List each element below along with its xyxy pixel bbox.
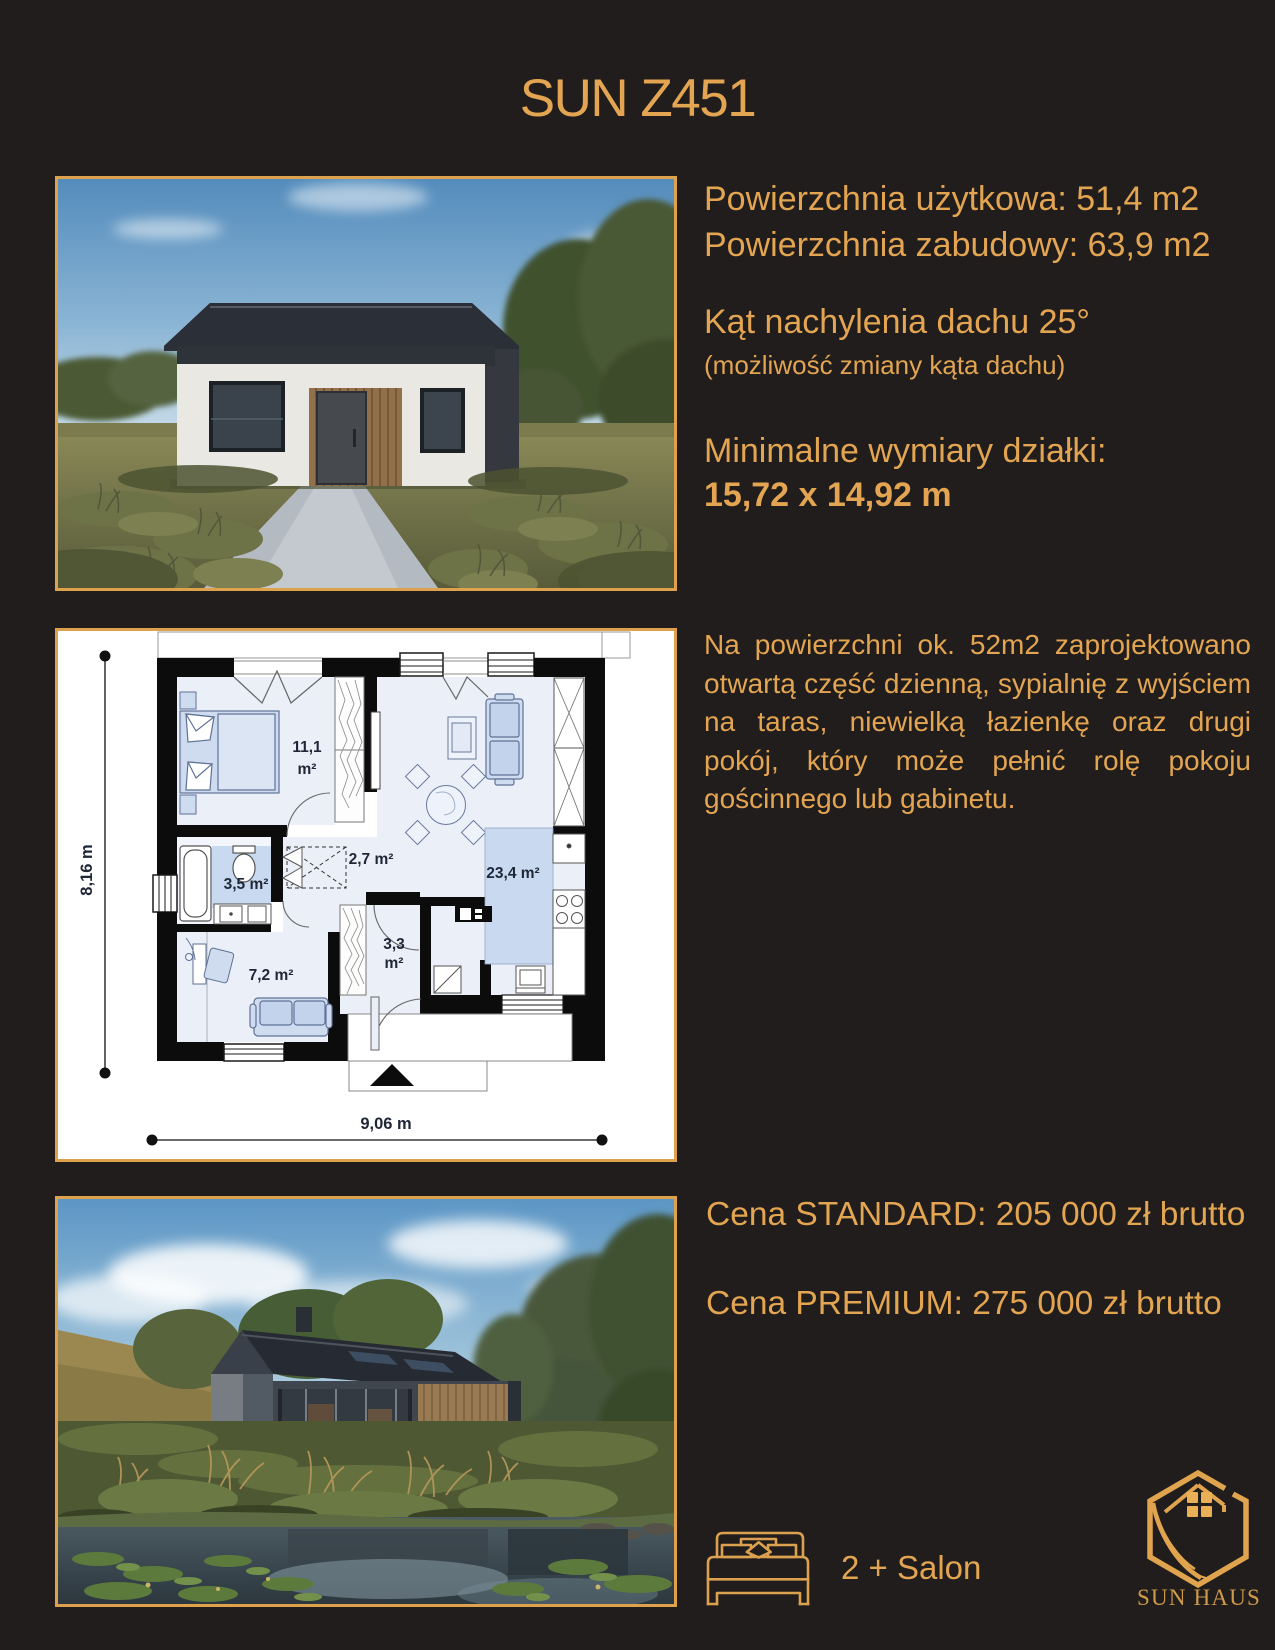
svg-text:m²: m² — [298, 761, 317, 778]
svg-text:SUN HAUS: SUN HAUS — [1137, 1585, 1261, 1610]
svg-text:23,4 m²: 23,4 m² — [486, 865, 539, 882]
svg-text:3,3: 3,3 — [383, 936, 405, 953]
svg-text:11,1: 11,1 — [292, 739, 322, 756]
svg-text:8,16 m: 8,16 m — [78, 844, 96, 895]
svg-text:3,5 m²: 3,5 m² — [224, 876, 269, 893]
svg-text:2,7 m²: 2,7 m² — [349, 851, 394, 868]
svg-text:7,2 m²: 7,2 m² — [249, 967, 294, 984]
svg-text:m²: m² — [385, 955, 404, 972]
svg-text:9,06 m: 9,06 m — [360, 1115, 411, 1133]
